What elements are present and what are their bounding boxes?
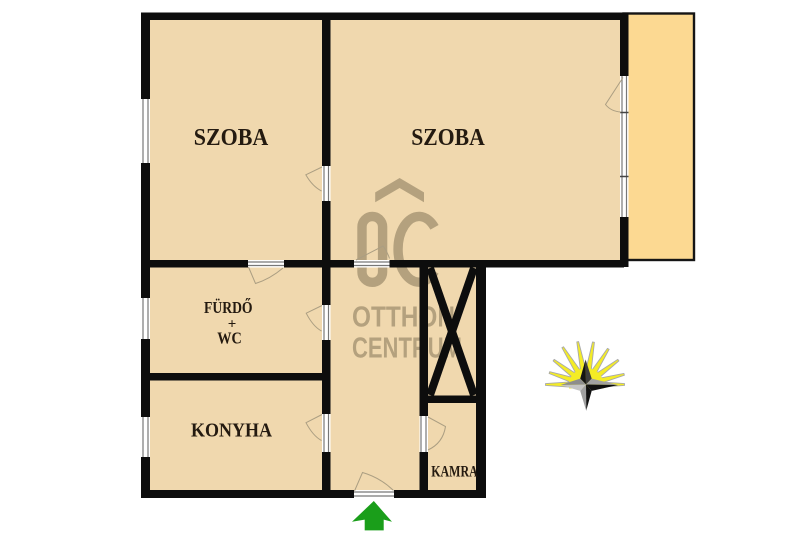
svg-text:SZOBA: SZOBA	[411, 124, 485, 151]
svg-text:FÜRDŐ: FÜRDŐ	[204, 298, 253, 317]
svg-text:KAMRA: KAMRA	[431, 464, 478, 481]
svg-text:WC: WC	[217, 328, 242, 347]
svg-text:SZOBA: SZOBA	[194, 124, 269, 151]
svg-text:KONYHA: KONYHA	[191, 420, 273, 442]
